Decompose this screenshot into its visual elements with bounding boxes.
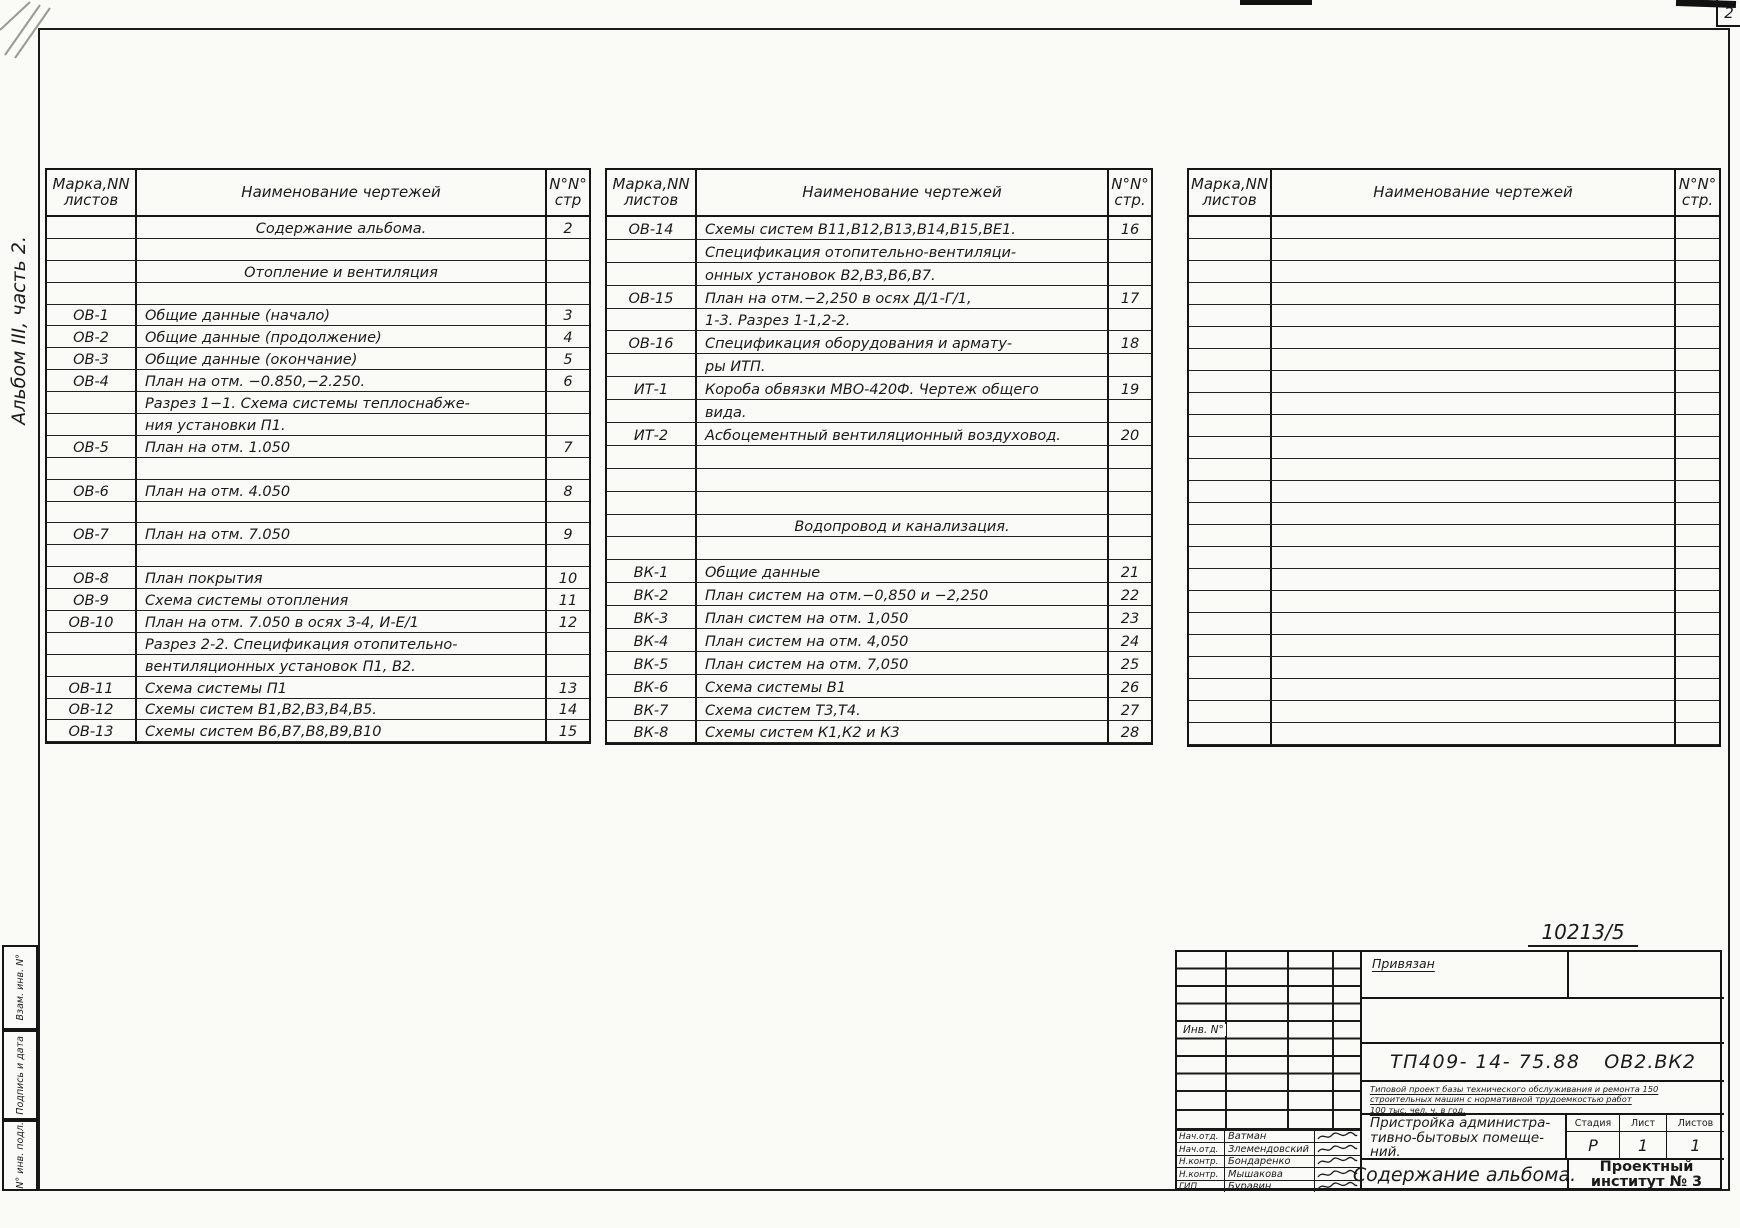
- mark-cell: ВК-2: [607, 583, 697, 605]
- page-cell: [1674, 723, 1719, 744]
- document-title: Содержание альбома.: [1362, 1160, 1567, 1190]
- name-cell: [1272, 283, 1674, 304]
- mark-cell: [607, 354, 697, 376]
- page-cell: [1107, 515, 1151, 537]
- sheets-value: 1: [1667, 1132, 1724, 1158]
- table-row: [47, 239, 589, 261]
- name-cell: [1272, 569, 1674, 590]
- name-cell: [1272, 591, 1674, 612]
- table-row: [1189, 569, 1719, 591]
- mark-cell: [1189, 371, 1272, 392]
- mark-cell: ИТ-2: [607, 423, 697, 445]
- table-row: ОВ-3Общие данные (окончание)5: [47, 348, 589, 370]
- page-cell: [545, 261, 589, 282]
- grid-line: [1567, 952, 1569, 997]
- table-row: [607, 446, 1151, 469]
- table-row: [1189, 283, 1719, 305]
- table-row: Разрез 1−1. Схема системы теплоснабже-: [47, 392, 589, 414]
- table-row: ОВ-7План на отм. 7.0509: [47, 523, 589, 545]
- name-cell: [1272, 349, 1674, 370]
- table-row: ВК-8Схемы систем К1,К2 и К328: [607, 721, 1151, 744]
- name-cell: План покрытия: [137, 567, 545, 588]
- page-cell: 12: [545, 611, 589, 632]
- name-cell: [1272, 503, 1674, 524]
- table-row: ОВ-14Схемы систем В11,В12,В13,В14,В15,ВЕ…: [607, 217, 1151, 240]
- name-cell: Схема систем Т3,Т4.: [697, 698, 1107, 720]
- signature-row: ГИПБуравин: [1177, 1180, 1360, 1192]
- name-cell: План на отм. 7.050 в осях 3-4, И-Е/1: [137, 611, 545, 632]
- signature-name: Злемендовский: [1225, 1143, 1315, 1154]
- page-cell: [1674, 217, 1719, 238]
- page-cell: [1674, 327, 1719, 348]
- stage-label: Стадия: [1567, 1115, 1619, 1132]
- page-cell: 3: [545, 305, 589, 326]
- page-cell: [1107, 492, 1151, 514]
- page-cell: 6: [545, 370, 589, 391]
- stage-value: Р: [1567, 1132, 1619, 1158]
- name-cell: Спецификация оборудования и армату-: [697, 331, 1107, 353]
- name-cell: [1272, 459, 1674, 480]
- archive-number: 10213/5: [1528, 920, 1638, 947]
- table-row: [1189, 613, 1719, 635]
- page-cell: 28: [1107, 721, 1151, 743]
- page-cell: [1107, 446, 1151, 468]
- table-row: [1189, 349, 1719, 371]
- mark-cell: [47, 545, 137, 566]
- table-row: [1189, 657, 1719, 679]
- page-cell: [545, 283, 589, 304]
- name-cell: Общие данные (окончание): [137, 348, 545, 369]
- header-mark: Марка,NN листов: [607, 170, 697, 215]
- page-cell: 13: [545, 677, 589, 698]
- table-row: ИТ-1Короба обвязки МВО-420Ф. Чертеж обще…: [607, 377, 1151, 400]
- page-cell: [1674, 503, 1719, 524]
- page-cell: 25: [1107, 652, 1151, 674]
- page-cell: [1674, 261, 1719, 282]
- binding-note: Привязан: [1372, 956, 1435, 971]
- grid-line: [1225, 952, 1227, 1130]
- table-row: [1189, 415, 1719, 437]
- name-cell: Асбоцементный вентиляционный воздуховод.: [697, 423, 1107, 445]
- name-cell: [1272, 701, 1674, 722]
- header-name: Наименование чертежей: [697, 170, 1107, 215]
- page-cell: 10: [545, 567, 589, 588]
- page-cell: 9: [545, 523, 589, 544]
- name-cell: [697, 492, 1107, 514]
- page-cell: 17: [1107, 286, 1151, 308]
- table-header: Марка,NN листов Наименование чертежей N°…: [1189, 170, 1719, 217]
- table-row: [1189, 481, 1719, 503]
- mark-cell: [1189, 393, 1272, 414]
- object-title: Пристройка администра- тивно-бытовых пом…: [1362, 1115, 1567, 1158]
- name-cell: [137, 545, 545, 566]
- mark-cell: [1189, 437, 1272, 458]
- mark-cell: [1189, 547, 1272, 568]
- mark-cell: ВК-7: [607, 698, 697, 720]
- table-row: [1189, 437, 1719, 459]
- name-cell: [1272, 239, 1674, 260]
- name-cell: [1272, 679, 1674, 700]
- signature-role: ГИП: [1177, 1181, 1225, 1192]
- page-cell: 18: [1107, 331, 1151, 353]
- sheet-number: 2: [1724, 4, 1734, 22]
- mark-cell: ОВ-3: [47, 348, 137, 369]
- page-cell: [1674, 371, 1719, 392]
- mark-cell: [1189, 283, 1272, 304]
- page-cell: [545, 239, 589, 260]
- header-mark: Марка,NN листов: [1189, 170, 1272, 215]
- header-name: Наименование чертежей: [1272, 170, 1674, 215]
- page-cell: [545, 414, 589, 435]
- mark-cell: ОВ-12: [47, 699, 137, 720]
- table-row: Водопровод и канализация.: [607, 515, 1151, 538]
- name-cell: [1272, 415, 1674, 436]
- table-row: вентиляционных установок П1, В2.: [47, 655, 589, 677]
- page-cell: [545, 655, 589, 676]
- drawing-sheet: 2 Альбом III, часть 2. Взам. инв. N° Под…: [0, 0, 1740, 1228]
- mark-cell: ВК-4: [607, 629, 697, 651]
- mark-cell: ОВ-10: [47, 611, 137, 632]
- header-name: Наименование чертежей: [137, 170, 545, 215]
- table-row: ОВ-15 План на отм.−2,250 в осях Д/1-Г/1,…: [607, 286, 1151, 309]
- mark-cell: ОВ-6: [47, 480, 137, 501]
- stamp-vzam-inv: Взам. инв. N°: [2, 945, 38, 1030]
- page-cell: [1674, 283, 1719, 304]
- table-row: [1189, 525, 1719, 547]
- table-row: [47, 502, 589, 524]
- mark-cell: [1189, 525, 1272, 546]
- name-cell: [137, 458, 545, 479]
- page-cell: [1674, 701, 1719, 722]
- scan-artifact: [1240, 0, 1312, 5]
- page-cell: 11: [545, 589, 589, 610]
- mark-cell: [1189, 349, 1272, 370]
- mark-cell: [47, 392, 137, 413]
- page-cell: [1674, 525, 1719, 546]
- name-cell: [697, 446, 1107, 468]
- signature-row: Нач.отд.Ватман: [1177, 1130, 1360, 1142]
- signature-name: Мышакова: [1225, 1168, 1315, 1179]
- name-cell: [1272, 371, 1674, 392]
- mark-cell: ОВ-5: [47, 436, 137, 457]
- stamp-podpis-data: Подпись и дата: [2, 1030, 38, 1120]
- table-row: [1189, 393, 1719, 415]
- mark-cell: [607, 400, 697, 422]
- page-cell: [1674, 679, 1719, 700]
- mark-cell: [607, 446, 697, 468]
- mark-cell: [1189, 261, 1272, 282]
- table-row: [1189, 635, 1719, 657]
- page-cell: 4: [545, 326, 589, 347]
- table-row: [1189, 701, 1719, 723]
- mark-cell: [1189, 569, 1272, 590]
- table-row: ОВ-11Схема системы П113: [47, 677, 589, 699]
- stamp-inv-podl: N° инв. подл.: [2, 1120, 38, 1191]
- table-row: [1189, 591, 1719, 613]
- name-cell: Содержание альбома.: [137, 217, 545, 238]
- table-row: [1189, 239, 1719, 261]
- name-cell: [1272, 525, 1674, 546]
- mark-cell: [47, 502, 137, 523]
- table-row: 1-3. Разрез 1-1,2-2.: [607, 309, 1151, 332]
- name-cell: Схемы систем К1,К2 и К3: [697, 721, 1107, 743]
- table-row: ВК-1Общие данные21: [607, 560, 1151, 583]
- mark-cell: ОВ-9: [47, 589, 137, 610]
- page-cell: [1674, 547, 1719, 568]
- mark-cell: [1189, 503, 1272, 524]
- table-row: ОВ-9Схема системы отопления11: [47, 589, 589, 611]
- name-cell: Общие данные (начало): [137, 305, 545, 326]
- mark-cell: ВК-6: [607, 675, 697, 697]
- page-cell: [1674, 569, 1719, 590]
- name-cell: [137, 239, 545, 260]
- stage-grid: Стадия Р Лист 1 Листов 1: [1567, 1115, 1724, 1158]
- table-row: ОВ-13Схемы систем В6,В7,В8,В9,В1015: [47, 720, 589, 742]
- name-cell: План на отм. −0.850,−2.250.: [137, 370, 545, 391]
- name-cell: [1272, 657, 1674, 678]
- drawing-index-table-2: Марка,NN листов Наименование чертежей N°…: [605, 168, 1153, 745]
- signature-name: Буравин: [1225, 1181, 1315, 1192]
- grid-line: [1287, 952, 1289, 1130]
- mark-cell: ОВ-7: [47, 523, 137, 544]
- page-cell: [545, 545, 589, 566]
- table-row: ВК-7Схема систем Т3,Т4.27: [607, 698, 1151, 721]
- name-cell: Схема системы П1: [137, 677, 545, 698]
- mark-cell: [1189, 723, 1272, 744]
- page-cell: [1674, 239, 1719, 260]
- mark-cell: ОВ-11: [47, 677, 137, 698]
- table-row: онных установок В2,В3,В6,В7.: [607, 263, 1151, 286]
- page-cell: 5: [545, 348, 589, 369]
- table-header: Марка,NN листов Наименование чертежей N°…: [47, 170, 589, 217]
- table-row: [1189, 723, 1719, 745]
- mark-cell: [1189, 701, 1272, 722]
- page-cell: [545, 502, 589, 523]
- mark-cell: ВК-3: [607, 606, 697, 628]
- page-cell: 7: [545, 436, 589, 457]
- mark-cell: [1189, 217, 1272, 238]
- name-cell: План систем на отм. 7,050: [697, 652, 1107, 674]
- header-page: N°N° стр.: [1107, 170, 1151, 215]
- name-cell: План на отм. 7.050: [137, 523, 545, 544]
- titleblock-row-codes: ТП409- 14- 75.88 ОВ2.ВК2: [1362, 1044, 1724, 1082]
- mark-cell: [1189, 481, 1272, 502]
- name-cell: ры ИТП.: [697, 354, 1107, 376]
- mark-cell: [607, 309, 697, 331]
- mark-cell: [607, 537, 697, 559]
- table-row: [1189, 679, 1719, 701]
- mark-cell: ОВ-2: [47, 326, 137, 347]
- name-cell: План систем на отм. 4,050: [697, 629, 1107, 651]
- name-cell: Схемы систем В1,В2,В3,В4,В5.: [137, 699, 545, 720]
- table-row: [607, 492, 1151, 515]
- name-cell: Схема системы отопления: [137, 589, 545, 610]
- page-cell: [1107, 537, 1151, 559]
- mark-cell: ОВ-4: [47, 370, 137, 391]
- table-row: [607, 469, 1151, 492]
- name-cell: [697, 537, 1107, 559]
- mark-cell: ОВ-8: [47, 567, 137, 588]
- table-row: ВК-5План систем на отм. 7,05025: [607, 652, 1151, 675]
- table-row: ВК-4План систем на отм. 4,05024: [607, 629, 1151, 652]
- table-row: ОВ-8План покрытия10: [47, 567, 589, 589]
- page-cell: [1674, 349, 1719, 370]
- page-cell: [1674, 393, 1719, 414]
- page-cell: [1107, 263, 1151, 285]
- page-cell: [1107, 400, 1151, 422]
- header-page: N°N° стр: [545, 170, 589, 215]
- name-cell: [1272, 437, 1674, 458]
- name-cell: Общие данные: [697, 560, 1107, 582]
- signature-row: Н.контр.Мышакова: [1177, 1167, 1360, 1179]
- name-cell: Общие данные (продолжение): [137, 326, 545, 347]
- mark-cell: [1189, 459, 1272, 480]
- name-cell: [1272, 723, 1674, 744]
- page-cell: 26: [1107, 675, 1151, 697]
- name-cell: [1272, 305, 1674, 326]
- name-cell: Разрез 1−1. Схема системы теплоснабже-: [137, 392, 545, 413]
- table-row: ВК-6Схема системы В126: [607, 675, 1151, 698]
- page-cell: [545, 458, 589, 479]
- table-row: [1189, 217, 1719, 239]
- sheet-number-box: 2: [1716, 0, 1740, 27]
- mark-cell: ВК-8: [607, 721, 697, 743]
- signature-row: Н.контр.Бондаренко: [1177, 1155, 1360, 1167]
- signature-rows: Нач.отд.ВатманНач.отд.ЗлемендовскийН.кон…: [1177, 1130, 1360, 1192]
- name-cell: План систем на отм. 1,050: [697, 606, 1107, 628]
- name-cell: Схемы систем В11,В12,В13,В14,В15,ВЕ1.: [697, 217, 1107, 239]
- mark-cell: [1189, 635, 1272, 656]
- table-row: ния установки П1.: [47, 414, 589, 436]
- mark-cell: [47, 239, 137, 260]
- mark-cell: [607, 263, 697, 285]
- album-label: Альбом III, часть 2.: [4, 150, 34, 510]
- mark-cell: [47, 655, 137, 676]
- name-cell: [137, 283, 545, 304]
- mark-cell: [607, 515, 697, 537]
- table-row: Спецификация отопительно-вентиляци-: [607, 240, 1151, 263]
- mark-cell: [47, 458, 137, 479]
- name-cell: [137, 502, 545, 523]
- grid-line: [1332, 952, 1334, 1130]
- table-row: Отопление и вентиляция: [47, 261, 589, 283]
- signature-icon: [1315, 1131, 1360, 1142]
- mark-cell: [607, 240, 697, 262]
- name-cell: ния установки П1.: [137, 414, 545, 435]
- document-code: ОВ2.ВК2: [1604, 1051, 1696, 1073]
- mark-cell: ОВ-1: [47, 305, 137, 326]
- signature-role: Нач.отд.: [1177, 1143, 1225, 1154]
- name-cell: [1272, 327, 1674, 348]
- page-cell: [545, 633, 589, 654]
- page-cell: [1107, 469, 1151, 491]
- name-cell: [697, 469, 1107, 491]
- page-cell: 24: [1107, 629, 1151, 651]
- page-cell: 22: [1107, 583, 1151, 605]
- project-code: ТП409- 14- 75.88: [1390, 1051, 1581, 1073]
- titleblock-row-binding: Привязан: [1362, 952, 1724, 999]
- mark-cell: [607, 492, 697, 514]
- mark-cell: ИТ-1: [607, 377, 697, 399]
- header-page: N°N° стр.: [1674, 170, 1719, 215]
- table-row: [47, 458, 589, 480]
- mark-cell: [47, 283, 137, 304]
- signature-name: Ватман: [1225, 1131, 1315, 1142]
- table-row: ОВ-16Спецификация оборудования и армату-…: [607, 331, 1151, 354]
- titleblock-row-title: Содержание альбома. Проектный институт №…: [1362, 1160, 1724, 1190]
- name-cell: 1-3. Разрез 1-1,2-2.: [697, 309, 1107, 331]
- mark-cell: [47, 261, 137, 282]
- table-row: ОВ-10План на отм. 7.050 в осях 3-4, И-Е/…: [47, 611, 589, 633]
- sheet-value: 1: [1620, 1132, 1666, 1158]
- table-row: [1189, 261, 1719, 283]
- titleblock-row-object: Пристройка администра- тивно-бытовых пом…: [1362, 1115, 1724, 1160]
- inventory-number-label: Инв. N°: [1181, 1024, 1226, 1036]
- page-cell: [1107, 240, 1151, 262]
- drawing-index-table-3: Марка,NN листов Наименование чертежей N°…: [1187, 168, 1721, 747]
- page-cell: [1674, 305, 1719, 326]
- table-row: [1189, 503, 1719, 525]
- signature-icon: [1315, 1143, 1360, 1154]
- header-mark: Марка,NN листов: [47, 170, 137, 215]
- title-block: Инв. N° Нач.отд.ВатманНач.отд.Злемендовс…: [1175, 950, 1722, 1190]
- table-row: ОВ-2Общие данные (продолжение)4: [47, 326, 589, 348]
- page-cell: 20: [1107, 423, 1151, 445]
- page-cell: [1107, 309, 1151, 331]
- mark-cell: [47, 414, 137, 435]
- page-cell: [1674, 657, 1719, 678]
- name-cell: [1272, 261, 1674, 282]
- drawing-index-table-1: Марка,NN листов Наименование чертежей N°…: [45, 168, 591, 744]
- page-cell: [1674, 437, 1719, 458]
- page-cell: 21: [1107, 560, 1151, 582]
- mark-cell: [47, 633, 137, 654]
- page-cell: 27: [1107, 698, 1151, 720]
- table-row: ОВ-1Общие данные (начало)3: [47, 305, 589, 327]
- name-cell: Схемы систем В6,В7,В8,В9,В10: [137, 720, 545, 741]
- sheets-label: Листов: [1667, 1115, 1724, 1132]
- table-row: [607, 537, 1151, 560]
- page-cell: 2: [545, 217, 589, 238]
- table-header: Марка,NN листов Наименование чертежей N°…: [607, 170, 1151, 217]
- name-cell: [1272, 635, 1674, 656]
- mark-cell: [1189, 679, 1272, 700]
- mark-cell: ОВ-13: [47, 720, 137, 741]
- name-cell: вентиляционных установок П1, В2.: [137, 655, 545, 676]
- name-cell: План на отм.−2,250 в осях Д/1-Г/1,: [697, 286, 1107, 308]
- name-cell: [1272, 613, 1674, 634]
- sheet-label: Лист: [1620, 1115, 1666, 1132]
- name-cell: Отопление и вентиляция: [137, 261, 545, 282]
- mark-cell: [1189, 613, 1272, 634]
- name-cell: Разрез 2-2. Спецификация отопительно-: [137, 633, 545, 654]
- mark-cell: [1189, 415, 1272, 436]
- mark-cell: [1189, 327, 1272, 348]
- mark-cell: [47, 217, 137, 238]
- mark-cell: [1189, 657, 1272, 678]
- name-cell: вида.: [697, 400, 1107, 422]
- mark-cell: ОВ-14: [607, 217, 697, 239]
- mark-cell: [1189, 239, 1272, 260]
- page-cell: [1674, 415, 1719, 436]
- name-cell: Схема системы В1: [697, 675, 1107, 697]
- page-cell: [545, 392, 589, 413]
- titleblock-row-description: Типовой проект базы технического обслужи…: [1362, 1082, 1724, 1115]
- table-row: вида.: [607, 400, 1151, 423]
- page-cell: 14: [545, 699, 589, 720]
- name-cell: [1272, 393, 1674, 414]
- table-row: [1189, 305, 1719, 327]
